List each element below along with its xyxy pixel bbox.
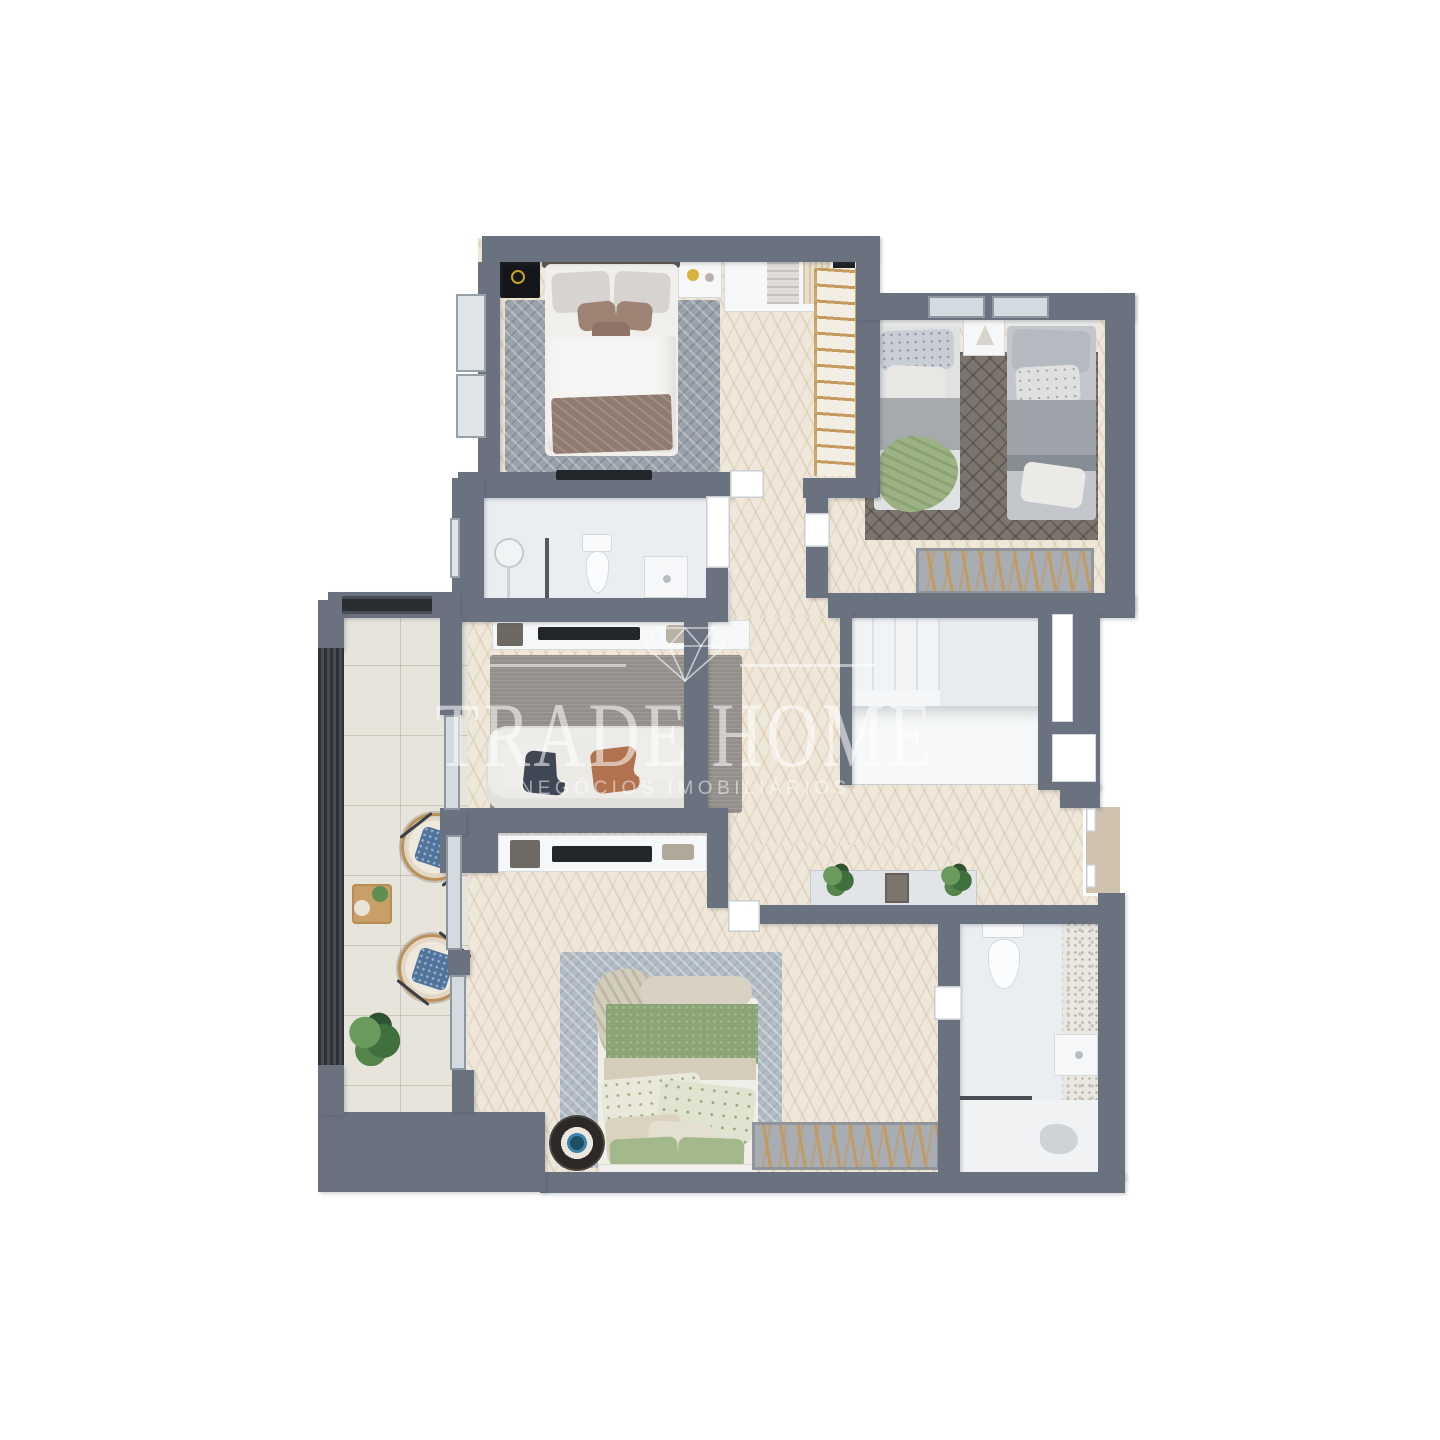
table-lamp: [687, 269, 699, 281]
sink-vanity: [644, 556, 688, 598]
picture-frame: [885, 873, 909, 903]
wall-segment: [1060, 782, 1100, 808]
toilet: [582, 534, 612, 552]
round-speaker: [549, 1115, 605, 1171]
door-opening: [730, 470, 764, 498]
watermark-subtitle: NEGÓCIOS IMOBILIÁRIOS: [365, 778, 1005, 800]
wall-segment: [1098, 893, 1125, 1180]
window: [928, 296, 985, 318]
faucet-icon: [663, 575, 671, 583]
balcony-glass-door: [446, 835, 462, 950]
wall-segment: [856, 236, 880, 497]
wall-segment: [706, 568, 728, 622]
kids-nightstand: [963, 316, 1005, 356]
table-lamp: [976, 325, 994, 345]
wall-segment: [318, 600, 344, 650]
watermark-line: [490, 664, 626, 667]
bed-blanket: [551, 394, 673, 454]
entry-door-jamb: [1086, 864, 1096, 888]
wall-segment: [540, 1172, 1125, 1193]
watermark: TRADE HOME NEGÓCIOS IMOBILIÁRIOS: [365, 620, 1005, 820]
door-opening: [706, 496, 730, 568]
side-table: [352, 884, 392, 924]
gold-decor-icon: [511, 270, 525, 284]
shower-glass: [960, 1096, 1032, 1100]
wall-segment: [482, 236, 878, 262]
wall-segment: [707, 833, 728, 908]
wall-niche: [1052, 734, 1096, 782]
decor-object: [662, 844, 694, 860]
ladder-rack: [814, 268, 858, 476]
window: [992, 296, 1049, 318]
door-opening: [934, 986, 962, 1020]
door-opening: [804, 513, 830, 547]
balcony-glass-door: [450, 975, 466, 1070]
wall-segment: [448, 950, 470, 975]
nightstand-white: [678, 260, 722, 298]
tv: [552, 846, 652, 862]
balcony-louver: [318, 648, 344, 1065]
potted-plant: [820, 862, 856, 896]
wall-segment: [1105, 293, 1135, 613]
shower-pole: [507, 566, 510, 598]
door-opening: [728, 900, 760, 932]
window-slit: [450, 518, 460, 578]
folded-clothes: [767, 262, 799, 304]
window: [456, 294, 486, 372]
shower-fixture: [1040, 1124, 1078, 1154]
diamond-icon: [643, 624, 727, 684]
vase: [705, 273, 714, 282]
nightstand-black: [500, 260, 540, 298]
wall-segment: [452, 1070, 474, 1112]
wall-segment: [452, 598, 710, 622]
table-dish: [354, 900, 370, 916]
potted-plant-large: [344, 1010, 404, 1066]
watermark-line: [740, 664, 876, 667]
table-plant: [372, 886, 388, 902]
sink-vanity: [1054, 1034, 1098, 1076]
window: [456, 374, 486, 438]
wall-segment: [806, 546, 828, 598]
ladder-bench: [916, 548, 1094, 594]
wall-segment: [803, 478, 878, 498]
wall-mounted-tv: [556, 470, 652, 480]
shower-head-icon: [494, 538, 524, 568]
entry-door-jamb: [1086, 808, 1096, 832]
watermark-title: TRADE HOME: [435, 682, 934, 788]
wall-segment: [938, 924, 960, 1175]
faucet-icon: [1075, 1051, 1083, 1059]
green-duvet: [606, 1004, 758, 1064]
pillow: [1020, 461, 1087, 509]
wall-segment: [318, 1112, 545, 1192]
potted-plant: [938, 862, 974, 896]
picture-frame: [510, 840, 540, 868]
wall-niche: [1052, 614, 1073, 722]
wall-segment: [318, 1065, 344, 1115]
shower-partition: [545, 538, 549, 600]
balcony-window-track: [342, 596, 432, 614]
floor-plan-render: TRADE HOME NEGÓCIOS IMOBILIÁRIOS: [0, 0, 1440, 1440]
ladder-bench: [752, 1122, 940, 1170]
wall-segment: [757, 905, 1110, 924]
